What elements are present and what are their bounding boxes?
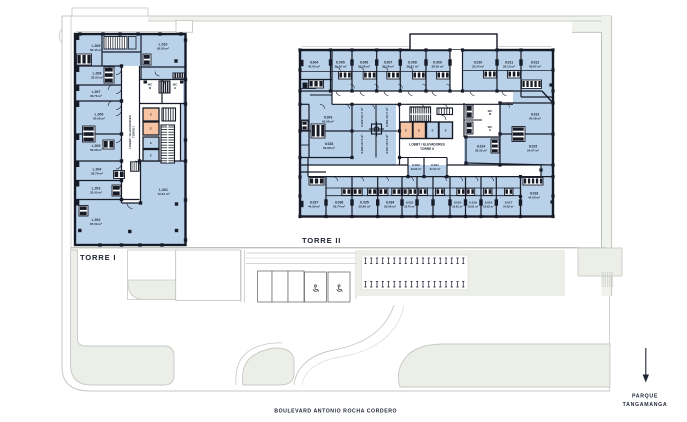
svg-text:E: E (445, 129, 447, 133)
svg-text:87.09 m²: 87.09 m² (90, 222, 102, 226)
svg-text:E: E (150, 127, 152, 131)
svg-text:50.08 m²: 50.08 m² (90, 148, 102, 152)
svg-text:50.08 m²: 50.08 m² (323, 146, 335, 150)
svg-text:II.017: II.017 (505, 201, 513, 205)
svg-text:32.05 m²: 32.05 m² (91, 75, 103, 79)
svg-text:19.92 m²: 19.92 m² (483, 204, 494, 208)
svg-text:29.74 m²: 29.74 m² (333, 204, 345, 208)
svg-text:TANGAMANGA: TANGAMANGA (623, 402, 668, 408)
svg-text:54.07 m²: 54.07 m² (527, 148, 539, 152)
svg-text:II.033: II.033 (406, 201, 414, 205)
svg-text:H: H (174, 86, 176, 90)
svg-text:II.020: II.020 (454, 201, 462, 205)
svg-text:50.08 m²: 50.08 m² (93, 116, 105, 120)
svg-text:44.28 m²: 44.28 m² (528, 195, 540, 199)
svg-text:29.66 m²: 29.66 m² (358, 204, 370, 208)
svg-text:32.05 m²: 32.05 m² (90, 190, 102, 194)
svg-text:39.36 m²: 39.36 m² (382, 64, 394, 68)
svg-text:H: H (489, 128, 491, 132)
svg-text:19.81 m²: 19.81 m² (468, 204, 479, 208)
svg-text:63.45 m²: 63.45 m² (90, 48, 102, 52)
svg-text:50.08 m²: 50.08 m² (529, 116, 541, 120)
svg-text:39.36 m²: 39.36 m² (358, 64, 370, 68)
svg-text:II.022: II.022 (412, 163, 420, 167)
svg-text:PARQUE: PARQUE (632, 394, 658, 400)
svg-text:E: E (150, 113, 152, 117)
svg-text:II.021: II.021 (431, 163, 439, 167)
svg-text:E: E (150, 153, 152, 157)
svg-text:E: E (150, 141, 152, 145)
svg-text:50.08 m²: 50.08 m² (322, 119, 334, 123)
svg-text:29.13 m²: 29.13 m² (503, 64, 515, 68)
svg-text:E: E (418, 129, 420, 133)
svg-text:44.29 m²: 44.29 m² (308, 204, 320, 208)
svg-text:II.026 15.73 m²: II.026 15.73 m² (360, 134, 364, 153)
svg-text:TORRE II: TORRE II (302, 236, 341, 245)
svg-text:II.001 10.77 m²: II.001 10.77 m² (385, 107, 389, 126)
svg-text:27.24 m²: 27.24 m² (430, 167, 441, 171)
svg-text:40.05 m²: 40.05 m² (308, 64, 320, 68)
svg-text:19.92 m²: 19.92 m² (411, 167, 422, 171)
svg-text:II.002 10.77 m²: II.002 10.77 m² (360, 107, 364, 126)
svg-text:36.81 m²: 36.81 m² (406, 64, 418, 68)
svg-text:II.027 15.73 m²: II.027 15.73 m² (385, 134, 389, 153)
svg-text:BOULEVARD ANTONIO ROCHA CORDER: BOULEVARD ANTONIO ROCHA CORDERO (274, 409, 397, 415)
svg-text:E: E (432, 129, 434, 133)
svg-text:38.59 m²: 38.59 m² (431, 64, 443, 68)
svg-text:II.019: II.019 (469, 201, 477, 205)
svg-text:TORRE II: TORRE II (420, 147, 434, 151)
svg-text:62.80 m²: 62.80 m² (157, 46, 169, 50)
svg-text:72.42 m²: 72.42 m² (157, 192, 169, 196)
svg-text:19.81 m²: 19.81 m² (452, 204, 463, 208)
svg-text:33.24 m²: 33.24 m² (472, 64, 484, 68)
svg-text:II.018: II.018 (485, 201, 493, 205)
svg-text:29.66 m²: 29.66 m² (384, 204, 396, 208)
svg-text:28.32 m²: 28.32 m² (475, 148, 487, 152)
svg-text:43.67 m²: 43.67 m² (529, 64, 541, 68)
svg-text:TORRE I: TORRE I (80, 253, 116, 262)
svg-text:TORRE I: TORRE I (131, 126, 135, 138)
svg-text:E: E (405, 129, 407, 133)
svg-text:30.76 m²: 30.76 m² (90, 94, 102, 98)
svg-text:24.02 m²: 24.02 m² (503, 204, 514, 208)
svg-text:28.76 m²: 28.76 m² (91, 171, 103, 175)
svg-text:39.36 m²: 39.36 m² (334, 64, 346, 68)
svg-text:19.70 m²: 19.70 m² (404, 204, 415, 208)
